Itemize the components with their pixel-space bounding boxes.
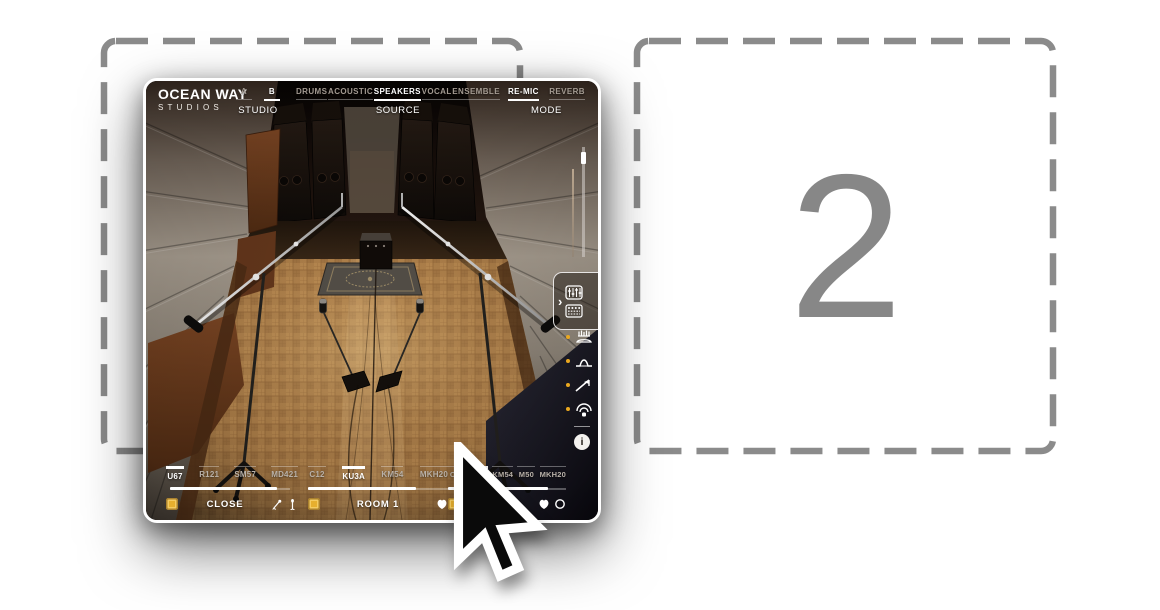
mode-tab-remic[interactable]: RE-MIC	[508, 87, 539, 101]
studio-tab-b[interactable]: B	[264, 87, 280, 101]
mic-group-name: CLOSE	[178, 499, 272, 510]
mic-option-md421[interactable]: MD421	[271, 466, 298, 479]
shelf-filter-icon[interactable]	[574, 377, 594, 393]
divider	[574, 426, 590, 427]
ocean-way-logo: OCEAN WAY STUDIOS	[158, 87, 248, 112]
slider-fill	[308, 487, 416, 490]
tool-icon-stack: i	[566, 328, 594, 450]
logo-line1: OCEAN WAY	[158, 87, 248, 101]
mode-group-label: MODE	[508, 105, 585, 116]
source-tab-speakers[interactable]: SPEAKERS	[374, 87, 421, 101]
mic-group-close: U67 R121 SM57 MD421 CLOS	[166, 466, 298, 512]
mic-selected-bar	[199, 466, 219, 467]
pads-icon[interactable]	[565, 304, 583, 318]
yellow-dot	[566, 359, 570, 363]
level-fader-right[interactable]	[582, 147, 585, 257]
source-group-label: SOURCE	[296, 105, 500, 116]
mic-option-u67[interactable]: U67	[166, 466, 184, 481]
studio-selector: A B STUDIO	[236, 87, 280, 116]
mode-tab-reverb[interactable]: REVERB	[549, 87, 585, 100]
mic-selected-bar	[381, 466, 403, 467]
mic-option-r121[interactable]: R121	[199, 466, 219, 479]
ambience-icon[interactable]	[574, 401, 594, 418]
room1-enable-toggle[interactable]	[308, 498, 320, 510]
omni-icon[interactable]	[554, 498, 566, 510]
level-meter-left	[572, 169, 574, 257]
mic-option-sm57[interactable]: SM57	[234, 466, 256, 479]
source-selector: DRUMS ACOUSTIC SPEAKERS VOCAL ENSEMBLE	[296, 87, 500, 116]
source-tab-vocal[interactable]: VOCAL	[422, 87, 452, 100]
mic-group-name: ROOM 1	[320, 499, 436, 510]
mic-selected-bar	[420, 466, 448, 467]
studio-group-label: STUDIO	[236, 105, 280, 116]
filter-tool[interactable]	[566, 376, 594, 394]
yellow-dot	[566, 335, 570, 339]
bell-curve-icon[interactable]	[574, 353, 594, 369]
fader-handle[interactable]	[581, 152, 586, 164]
boom-stand-icon[interactable]	[272, 499, 283, 510]
mic-option-c12[interactable]: C12	[308, 466, 326, 479]
console-tool[interactable]	[566, 328, 594, 346]
mic-selected-bar	[308, 466, 326, 467]
studio-tab-a[interactable]: A	[236, 87, 252, 100]
mic-selected-bar	[166, 466, 184, 469]
step-number: 2	[633, 37, 1057, 455]
source-tab-ensemble[interactable]: ENSEMBLE	[452, 87, 500, 100]
mixer-drawer-panel[interactable]: ›	[553, 272, 598, 330]
yellow-dot	[566, 383, 570, 387]
mic-option-km54[interactable]: KM54	[381, 466, 403, 479]
straight-stand-icon[interactable]	[287, 499, 298, 510]
mouse-cursor	[446, 442, 548, 594]
close-enable-toggle[interactable]	[166, 498, 178, 510]
yellow-dot	[566, 407, 570, 411]
source-tab-acoustic[interactable]: ACOUSTIC	[328, 87, 373, 100]
mic-selected-bar	[342, 466, 365, 469]
mic-option-ku3a[interactable]: KU3A	[342, 466, 365, 481]
mic-selected-bar	[271, 466, 298, 467]
mic-group-room1: C12 KU3A KM54 MKH20 ROOM	[308, 466, 448, 512]
room1-level-slider[interactable]	[308, 488, 448, 490]
eq-curve-tool[interactable]	[566, 352, 594, 370]
source-tab-drums[interactable]: DRUMS	[296, 87, 327, 100]
mic-selected-bar	[234, 466, 256, 467]
chevron-right-icon[interactable]: ›	[558, 294, 562, 309]
close-level-slider[interactable]	[170, 488, 290, 490]
mixer-icon[interactable]	[565, 285, 583, 300]
slider-fill	[170, 487, 277, 490]
mode-selector: RE-MIC REVERB MODE	[508, 87, 585, 116]
info-icon[interactable]: i	[574, 434, 590, 450]
tutorial-screen: { "step": { "number": "2" }, "plugin": {…	[0, 0, 1160, 610]
console-icon[interactable]	[574, 329, 594, 345]
logo-line2: STUDIOS	[158, 103, 248, 112]
mic-option-mkh20[interactable]: MKH20	[420, 466, 448, 479]
ambience-tool[interactable]	[566, 400, 594, 418]
